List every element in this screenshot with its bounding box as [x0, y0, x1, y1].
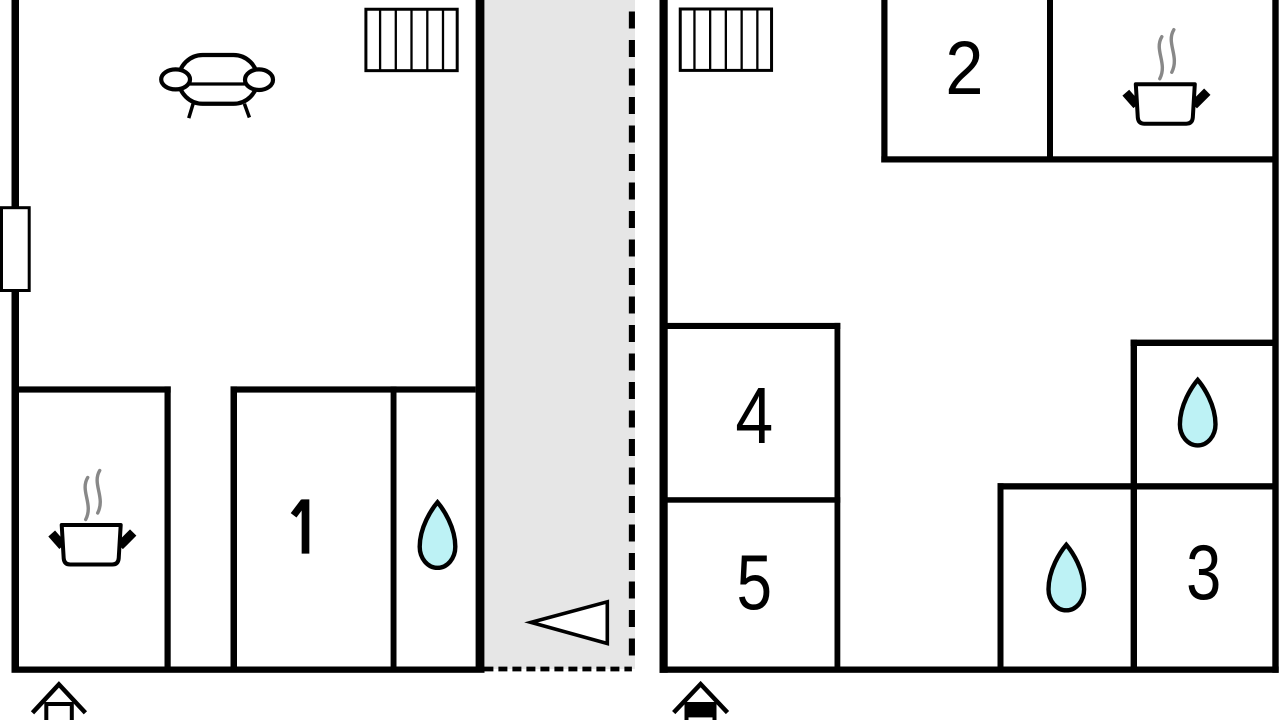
svg-text:4: 4	[735, 371, 773, 460]
svg-text:5: 5	[737, 539, 773, 626]
svg-text:2: 2	[945, 27, 983, 111]
svg-text:3: 3	[1186, 530, 1221, 617]
